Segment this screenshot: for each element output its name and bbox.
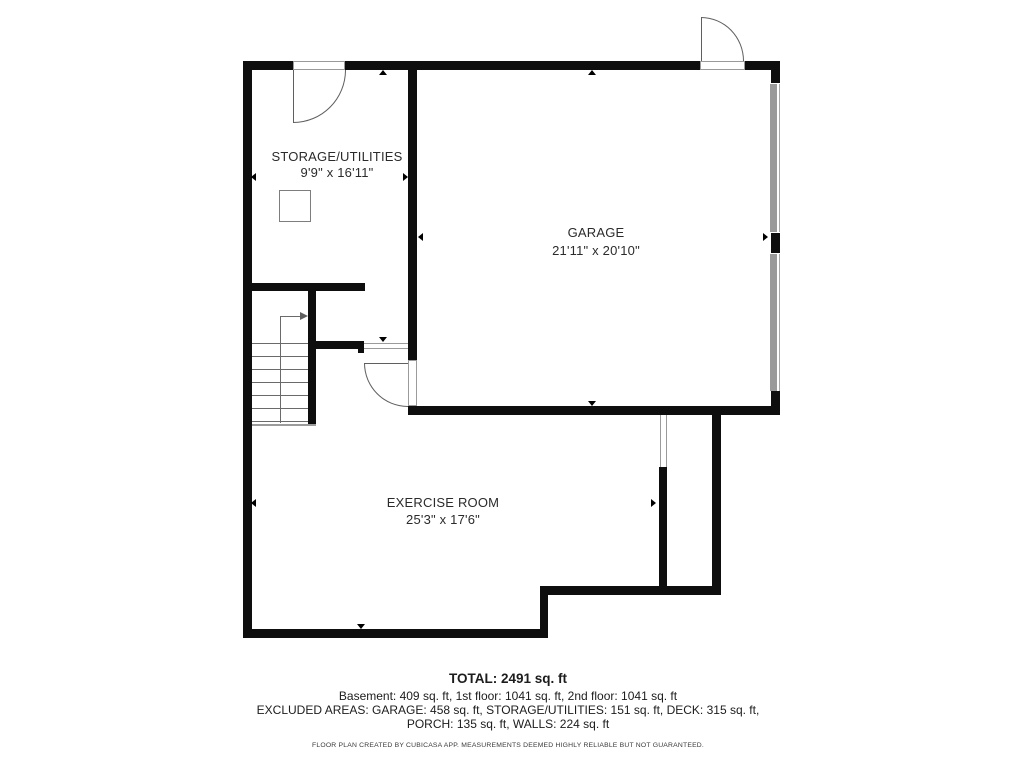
wall-storage-garage (408, 61, 417, 360)
wall-garage-bottom (408, 406, 780, 415)
room-name-exercise-room: EXERCISE ROOM (343, 495, 543, 510)
stair-arrow-line-horizontal (280, 316, 302, 317)
storage-door-swing (293, 70, 346, 123)
stair-bottom-edge (252, 424, 316, 426)
landing-opening-line-bottom (364, 348, 408, 349)
wall-exercise-interior (659, 467, 667, 595)
summary-floors: Basement: 409 sq. ft, 1st floor: 1041 sq… (0, 689, 1016, 703)
room-name-storage-utilities: STORAGE/UTILITIES (237, 149, 437, 164)
wall-bottom-main (243, 629, 548, 638)
garage-door-panel-lower (770, 254, 777, 391)
room-dim-storage-utilities: 9'9" x 16'11" (237, 165, 437, 180)
marker-garage-top-icon (588, 70, 596, 75)
summary-total: TOTAL: 2491 sq. ft (0, 671, 1016, 686)
marker-exercise-left-icon (251, 499, 256, 507)
garage-door-track-lower (779, 254, 780, 391)
garage-door-track-upper (779, 84, 780, 232)
storage-door-opening (293, 61, 345, 70)
marker-garage-left-icon (418, 233, 423, 241)
marker-exercise-bottom-icon (357, 624, 365, 629)
wall-bottom-right (540, 586, 721, 595)
room-name-garage: GARAGE (496, 225, 696, 240)
wall-garage-right-top (771, 61, 780, 83)
garage-door-panel-upper (770, 84, 777, 232)
wall-stair-mid (316, 341, 364, 349)
stair-garage-door-opening (408, 360, 417, 406)
marker-landing-icon (379, 337, 387, 342)
exercise-opening-line-right (666, 415, 667, 467)
wall-left (243, 61, 252, 638)
marker-exercise-interior-icon (651, 499, 656, 507)
floor-plan-canvas: STORAGE/UTILITIES 9'9" x 16'11" GARAGE 2… (0, 0, 1024, 768)
room-dim-exercise-room: 25'3" x 17'6" (343, 512, 543, 527)
garage-entry-door-swing (701, 17, 744, 61)
wall-stair-vertical (308, 283, 316, 425)
stair-arrow-head-icon (300, 312, 308, 320)
garage-entry-door-opening (700, 61, 745, 70)
room-dim-garage: 21'11" x 20'10" (496, 243, 696, 258)
disclaimer-text: FLOOR PLAN CREATED BY CUBICASA APP. MEAS… (0, 742, 1016, 749)
marker-garage-bottom-icon (588, 401, 596, 406)
wall-exercise-right (712, 406, 721, 595)
marker-garage-right-icon (763, 233, 768, 241)
wall-garage-right-bottom (771, 391, 780, 415)
stair-garage-door-swing (364, 363, 408, 407)
wall-garage-right-mid (771, 233, 780, 253)
exercise-opening-line-left (660, 415, 661, 467)
utility-unit-box (279, 190, 311, 222)
wall-stair-mid-endcap (358, 349, 364, 353)
wall-storage-bottom (243, 283, 365, 291)
marker-storage-top-icon (379, 70, 387, 75)
landing-opening-line-top (364, 343, 408, 344)
stair-arrow-line-vertical (280, 316, 281, 423)
summary-excluded-line1: EXCLUDED AREAS: GARAGE: 458 sq. ft, STOR… (0, 703, 1016, 717)
summary-excluded-line2: PORCH: 135 sq. ft, WALLS: 224 sq. ft (0, 717, 1016, 731)
